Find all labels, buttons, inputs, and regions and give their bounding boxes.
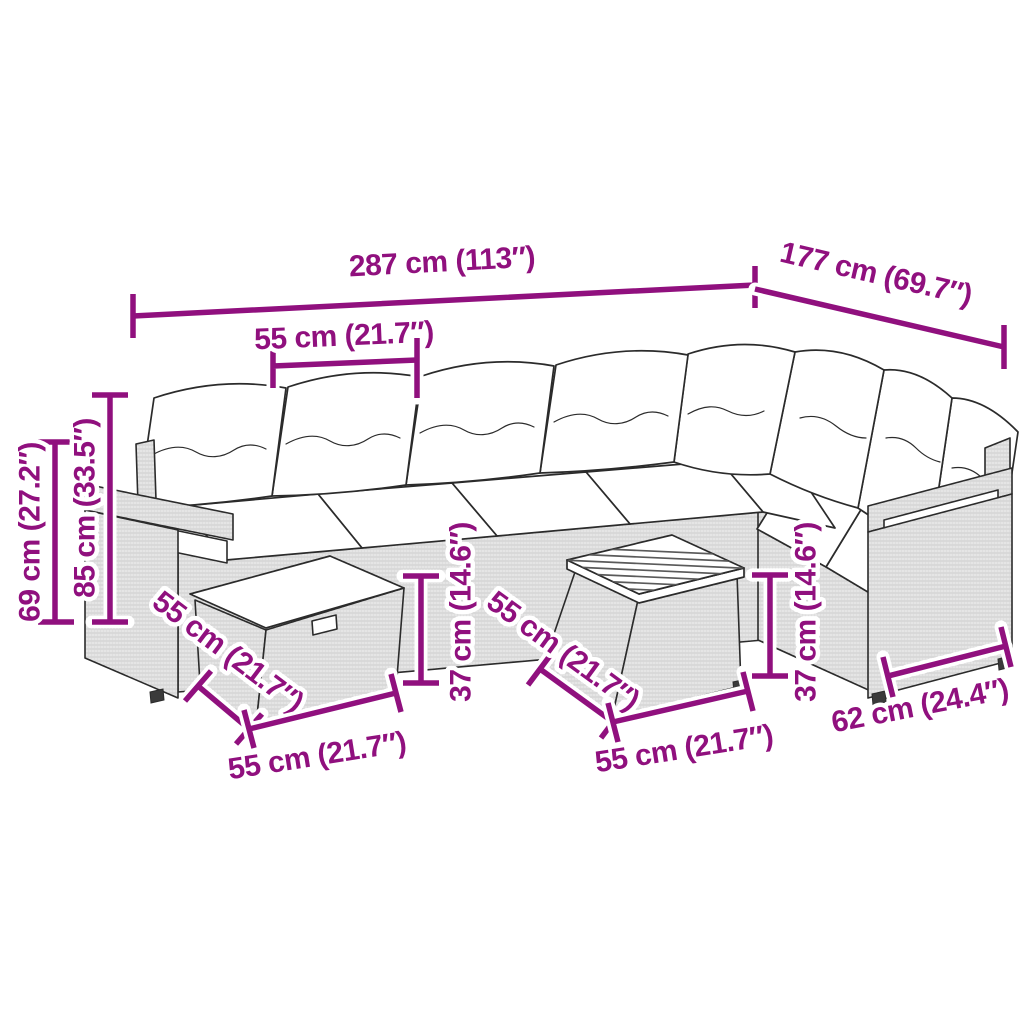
diagram-svg: 287 cm (113″) 177 cm (69.7″) 55 cm (21.7… [0, 0, 1024, 1024]
dim-back-height-label: 85 cm (33.5″) [69, 418, 102, 598]
dimension-diagram: 287 cm (113″) 177 cm (69.7″) 55 cm (21.7… [0, 0, 1024, 1024]
dim-seat-module-width-label: 55 cm (21.7″) [254, 316, 435, 357]
dim-arm-height: 69 cm (27.2″) [14, 442, 75, 622]
back-cushion [272, 373, 420, 496]
dim-overall-depth: 177 cm (69.7″) [755, 236, 1004, 369]
dim-arm-height-label: 69 cm (27.2″) [14, 442, 47, 622]
dim-seat-height-front-label: 37 cm (14.6″) [445, 522, 478, 702]
back-cushion [406, 362, 554, 485]
back-cushion [138, 384, 286, 508]
dim-overall-width-label: 287 cm (113″) [348, 241, 536, 284]
back-cushion [540, 351, 688, 473]
dim-seat-height-right-label: 37 cm (14.6″) [790, 522, 823, 702]
dim-overall-width: 287 cm (113″) [133, 241, 755, 338]
